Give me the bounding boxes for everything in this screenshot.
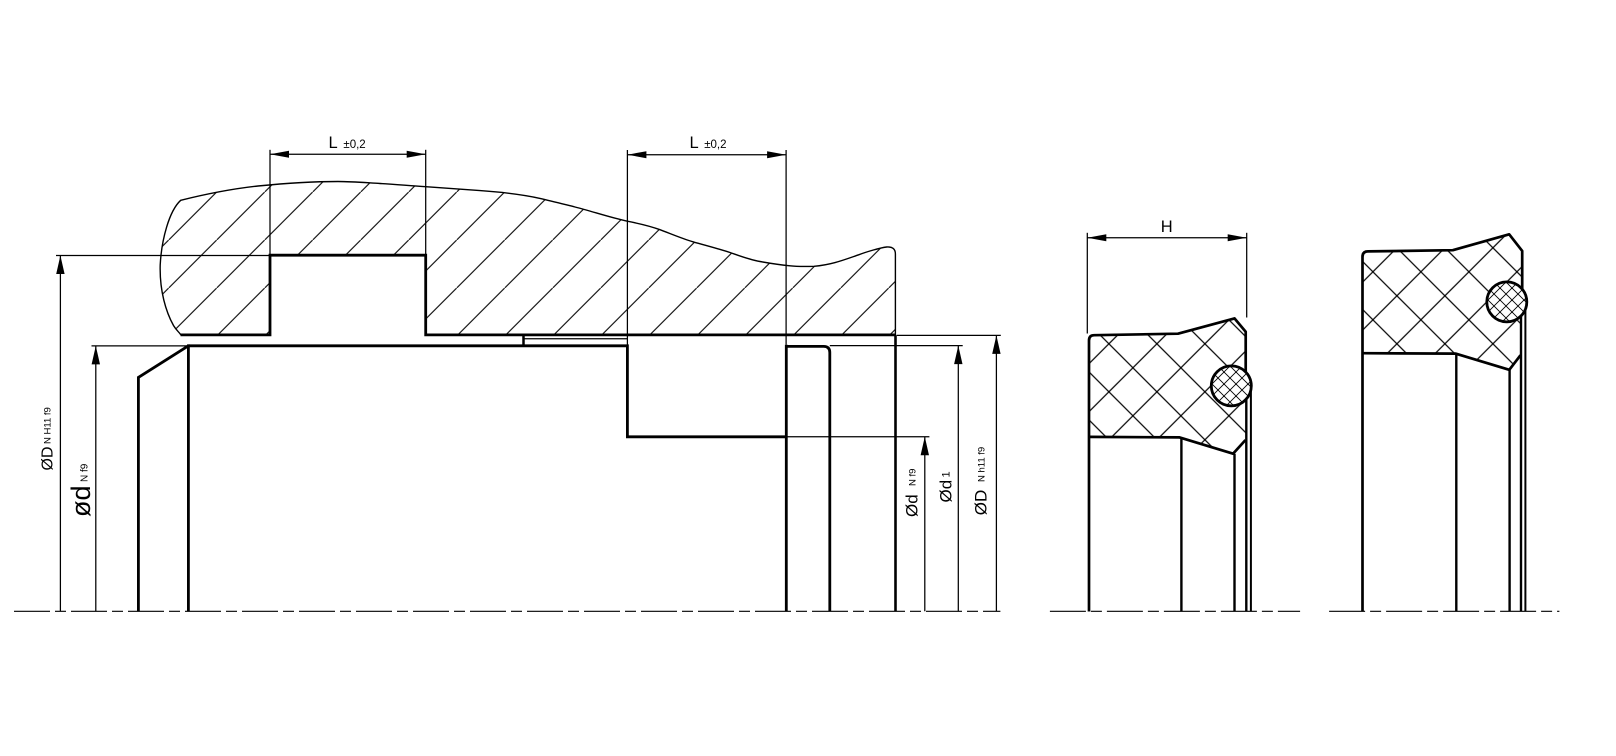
svg-text:ØD: ØD (972, 490, 991, 516)
svg-text:L: L (690, 134, 699, 152)
svg-text:N H11 f9: N H11 f9 (43, 407, 54, 444)
svg-text:Ød: Ød (903, 494, 922, 517)
svg-text:±0,2: ±0,2 (343, 139, 365, 151)
svg-text:N f9: N f9 (80, 463, 91, 482)
svg-text:N f9: N f9 (908, 469, 919, 486)
svg-text:H: H (1161, 218, 1173, 236)
svg-text:ØD: ØD (40, 447, 57, 471)
svg-text:N h11 f9: N h11 f9 (977, 447, 988, 482)
svg-text:ød: ød (66, 485, 96, 517)
svg-text:1: 1 (941, 471, 953, 477)
svg-text:±0,2: ±0,2 (704, 139, 726, 151)
svg-text:Ød: Ød (937, 480, 956, 503)
svg-text:L: L (329, 134, 338, 152)
